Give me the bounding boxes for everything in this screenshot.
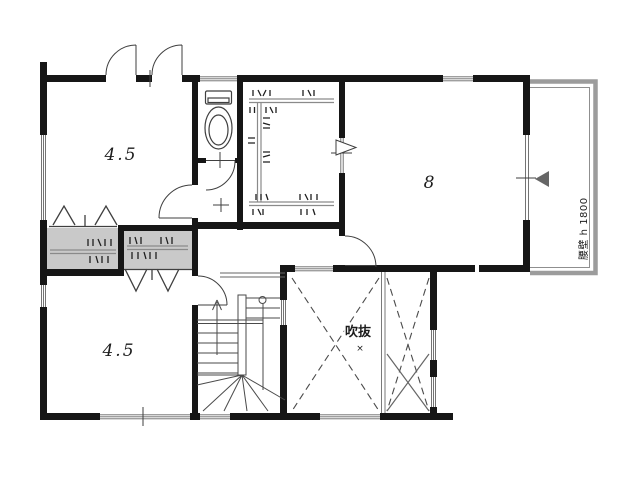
floor-plan-drawing: 4.5 4.5 8 吹抜 × 腰壁 h 1800 — [0, 0, 640, 480]
bifold-top-closet — [49, 206, 117, 227]
room-label-bedroom-bottom-left: 4.5 — [101, 341, 135, 361]
void-brace-lines — [387, 354, 429, 411]
door-arc-bedroom-bottom — [198, 276, 227, 305]
void-divider — [382, 272, 386, 413]
door-arc-top-left-b — [152, 45, 182, 75]
door-arc-bedroom-right — [345, 236, 376, 267]
balcony-label: 腰壁 h 1800 — [577, 197, 590, 260]
door-arc-bedroom-top — [159, 185, 192, 218]
room-label-bedroom-right: 8 — [424, 173, 435, 193]
door-arc-top-left-a — [106, 45, 136, 75]
room-label-bedroom-top-left: 4.5 — [103, 145, 137, 165]
balcony-entry-arrow-icon — [535, 171, 549, 187]
void-center-mark: × — [356, 344, 364, 354]
floor-plan-page: 4.5 4.5 8 吹抜 × 腰壁 h 1800 — [0, 0, 640, 480]
toilet-icon — [205, 91, 232, 149]
stair-up-arrow-icon — [213, 300, 222, 355]
staircase — [197, 295, 285, 411]
void-label: 吹抜 — [345, 324, 372, 340]
bifold-bottom-closet — [124, 269, 192, 291]
